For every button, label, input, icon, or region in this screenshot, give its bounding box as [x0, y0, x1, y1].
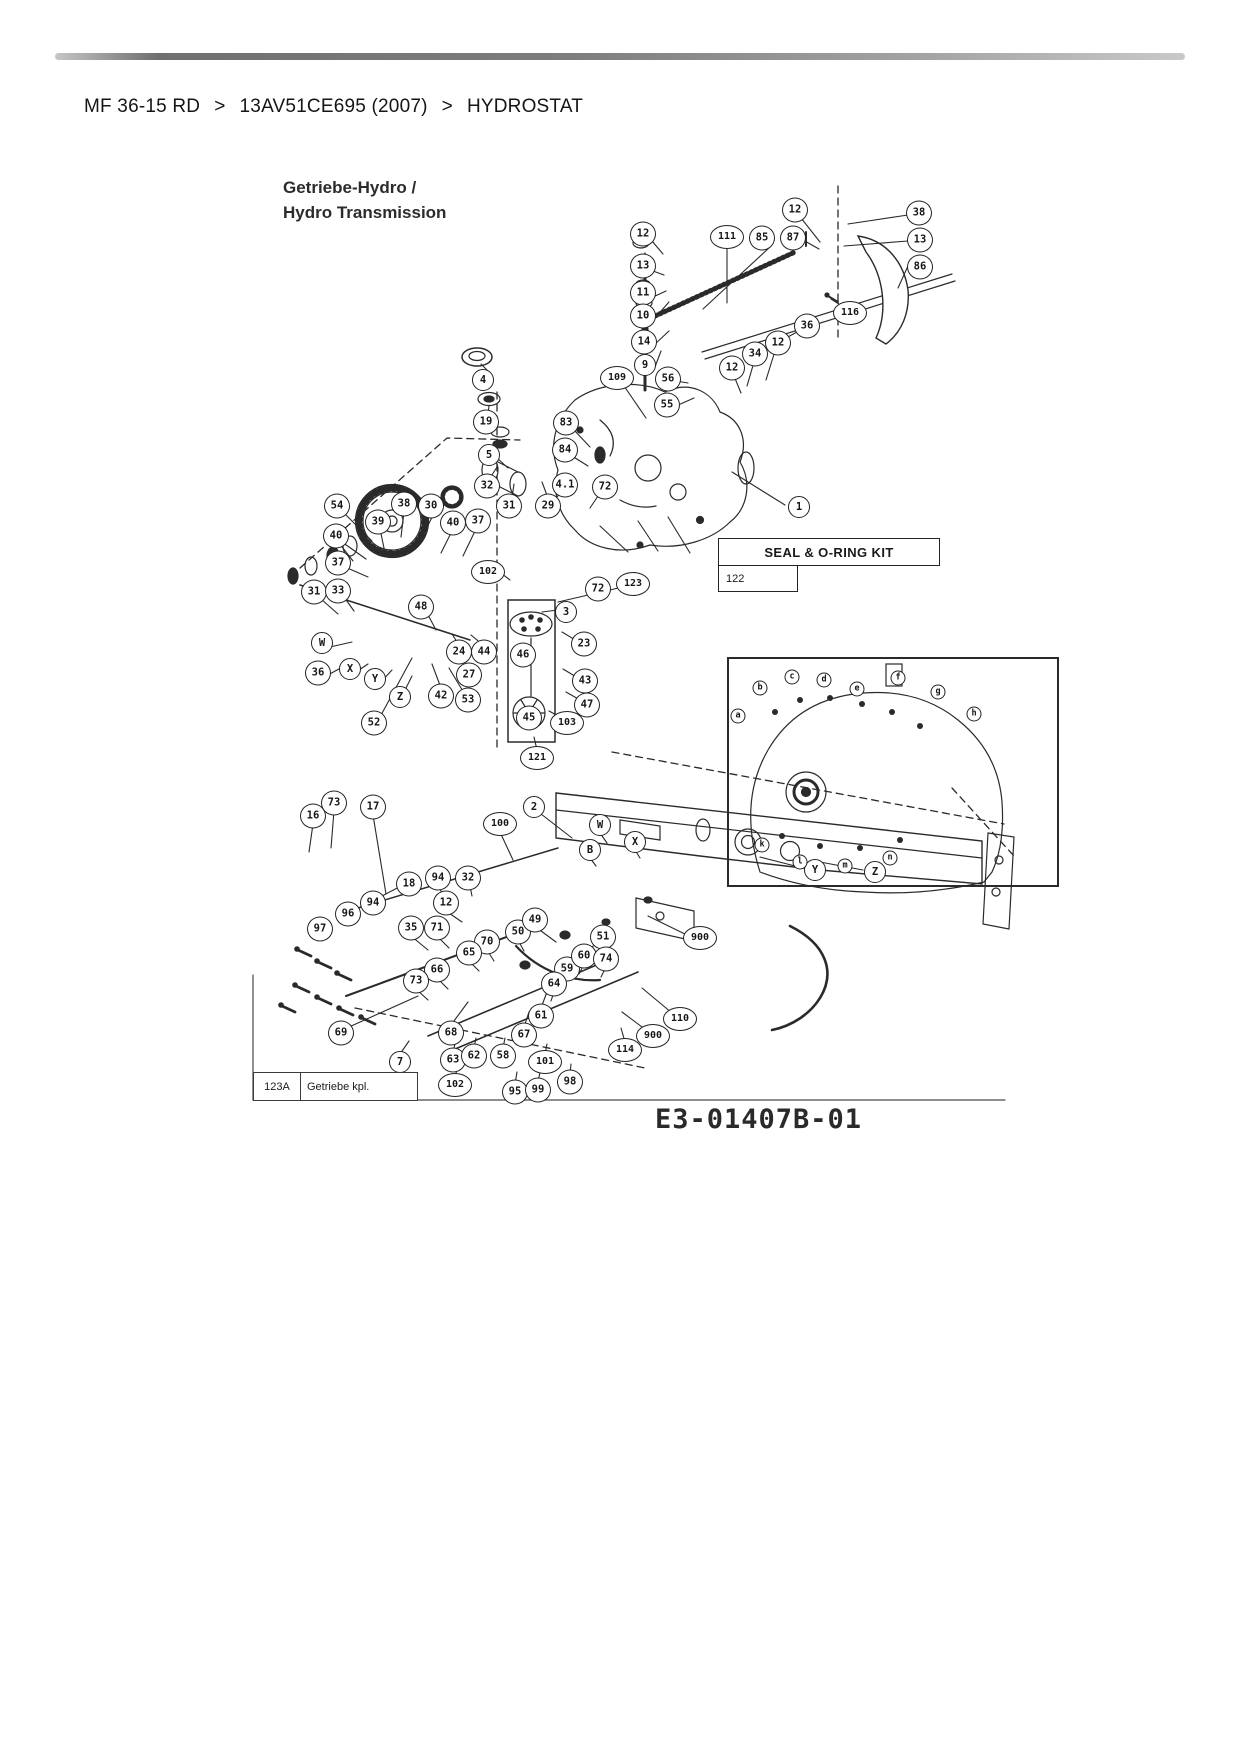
footer-ref: 123A [253, 1072, 300, 1101]
callout-44: 44 [471, 640, 497, 665]
callout-12: 12 [719, 356, 745, 381]
callout-46: 46 [510, 643, 536, 668]
callout-d: d [817, 673, 832, 688]
callout-33: 33 [325, 579, 351, 604]
callout-12: 12 [433, 891, 459, 916]
callout-98: 98 [557, 1070, 583, 1095]
footer-table: 123A Getriebe kpl. [253, 1072, 418, 1101]
callout-X: X [339, 658, 361, 680]
callout-l: l [793, 855, 808, 870]
callout-114: 114 [608, 1038, 642, 1062]
callout-layer: 1213111014911185871238138611636123412565… [0, 0, 1240, 1754]
callout-42: 42 [428, 684, 454, 709]
callout-37: 37 [325, 551, 351, 576]
callout-30: 30 [418, 494, 444, 519]
callout-121: 121 [520, 746, 554, 770]
callout-49: 49 [522, 908, 548, 933]
callout-52: 52 [361, 711, 387, 736]
callout-e: e [850, 682, 865, 697]
callout-96: 96 [335, 902, 361, 927]
callout-86: 86 [907, 255, 933, 280]
callout-73: 73 [403, 969, 429, 994]
footer-label: Getriebe kpl. [300, 1072, 418, 1101]
callout-83: 83 [553, 411, 579, 436]
callout-48: 48 [408, 595, 434, 620]
callout-111: 111 [710, 225, 744, 249]
callout-65: 65 [456, 941, 482, 966]
callout-36: 36 [794, 314, 820, 339]
callout-94: 94 [360, 891, 386, 916]
callout-39: 39 [365, 510, 391, 535]
callout-11: 11 [630, 281, 656, 306]
callout-87: 87 [780, 226, 806, 251]
callout-W: W [589, 814, 611, 836]
callout-14: 14 [631, 330, 657, 355]
callout-110: 110 [663, 1007, 697, 1031]
callout-67: 67 [511, 1023, 537, 1048]
callout-37: 37 [465, 509, 491, 534]
callout-36: 36 [305, 661, 331, 686]
callout-74: 74 [593, 947, 619, 972]
callout-17: 17 [360, 795, 386, 820]
callout-4.1: 4.1 [552, 473, 578, 498]
callout-101: 101 [528, 1050, 562, 1074]
callout-c: c [785, 670, 800, 685]
callout-f: f [891, 671, 906, 686]
callout-13: 13 [907, 228, 933, 253]
callout-b: b [753, 681, 768, 696]
callout-h: h [967, 707, 982, 722]
callout-43: 43 [572, 669, 598, 694]
callout-B: B [579, 839, 601, 861]
callout-102: 102 [471, 560, 505, 584]
callout-32: 32 [474, 474, 500, 499]
callout-23: 23 [571, 632, 597, 657]
callout-Z: Z [864, 861, 886, 883]
callout-34: 34 [742, 342, 768, 367]
callout-2: 2 [523, 796, 545, 818]
callout-100: 100 [483, 812, 517, 836]
callout-71: 71 [424, 916, 450, 941]
callout-40: 40 [440, 511, 466, 536]
callout-58: 58 [490, 1044, 516, 1069]
callout-94: 94 [425, 866, 451, 891]
callout-102: 102 [438, 1073, 472, 1097]
callout-62: 62 [461, 1044, 487, 1069]
callout-13: 13 [630, 254, 656, 279]
callout-10: 10 [630, 304, 656, 329]
callout-24: 24 [446, 640, 472, 665]
callout-19: 19 [473, 410, 499, 435]
drawing-number: E3-01407B-01 [655, 1104, 862, 1135]
callout-k: k [755, 838, 770, 853]
callout-116: 116 [833, 301, 867, 325]
callout-31: 31 [301, 580, 327, 605]
callout-W: W [311, 632, 333, 654]
callout-Y: Y [364, 668, 386, 690]
callout-38: 38 [906, 201, 932, 226]
callout-64: 64 [541, 972, 567, 997]
callout-40: 40 [323, 524, 349, 549]
callout-123: 123 [616, 572, 650, 596]
callout-56: 56 [655, 367, 681, 392]
callout-m: m [838, 859, 853, 874]
callout-53: 53 [455, 688, 481, 713]
callout-7: 7 [389, 1051, 411, 1073]
callout-18: 18 [396, 872, 422, 897]
callout-109: 109 [600, 366, 634, 390]
callout-73: 73 [321, 791, 347, 816]
callout-27: 27 [456, 663, 482, 688]
callout-29: 29 [535, 494, 561, 519]
callout-900: 900 [683, 926, 717, 950]
callout-X: X [624, 831, 646, 853]
callout-n: n [883, 851, 898, 866]
callout-5: 5 [478, 444, 500, 466]
callout-31: 31 [496, 494, 522, 519]
callout-72: 72 [585, 577, 611, 602]
callout-9: 9 [634, 354, 656, 376]
callout-55: 55 [654, 393, 680, 418]
callout-68: 68 [438, 1021, 464, 1046]
callout-54: 54 [324, 494, 350, 519]
callout-12: 12 [630, 222, 656, 247]
callout-95: 95 [502, 1080, 528, 1105]
callout-103: 103 [550, 711, 584, 735]
callout-69: 69 [328, 1021, 354, 1046]
callout-g: g [931, 685, 946, 700]
callout-Z: Z [389, 686, 411, 708]
callout-84: 84 [552, 438, 578, 463]
parts-catalog-page: MF 36-15 RD>13AV51CE695 (2007)>HYDROSTAT… [0, 0, 1240, 1754]
callout-35: 35 [398, 916, 424, 941]
callout-3: 3 [555, 601, 577, 623]
callout-12: 12 [765, 331, 791, 356]
callout-4: 4 [472, 369, 494, 391]
callout-85: 85 [749, 226, 775, 251]
callout-12: 12 [782, 198, 808, 223]
callout-45: 45 [516, 706, 542, 731]
callout-32: 32 [455, 866, 481, 891]
callout-a: a [731, 709, 746, 724]
callout-97: 97 [307, 917, 333, 942]
callout-900: 900 [636, 1024, 670, 1048]
callout-72: 72 [592, 475, 618, 500]
callout-99: 99 [525, 1078, 551, 1103]
callout-38: 38 [391, 492, 417, 517]
callout-1: 1 [788, 496, 810, 518]
